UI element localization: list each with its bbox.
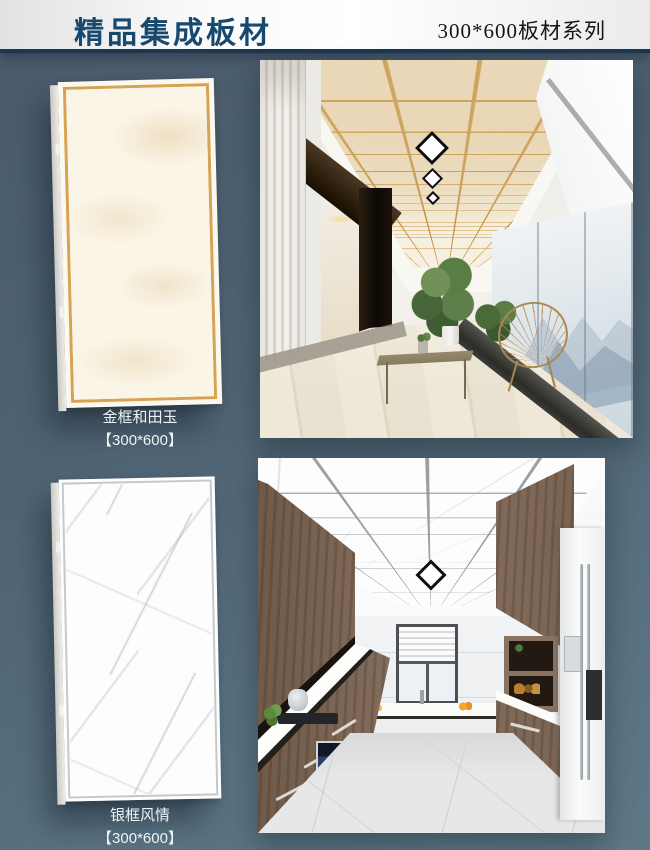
kettle — [288, 689, 308, 711]
balcony-scene-photo — [260, 60, 633, 438]
wall-oven-inset — [586, 670, 602, 720]
product-panel-silver-charm — [59, 476, 222, 801]
page-title: 精品集成板材 — [74, 8, 272, 52]
product-size: 【300*600】 — [30, 828, 250, 850]
product-panel-gold-jade — [58, 78, 222, 408]
product-name: 金框和田玉 — [30, 407, 250, 430]
header-bar: 精品集成板材 300*600板材系列 — [0, 0, 650, 53]
curtain — [260, 60, 306, 394]
cream-marble-surface — [66, 86, 214, 400]
window-blinds — [399, 627, 455, 663]
product-name: 银框风情 — [30, 805, 250, 828]
counter-plant — [260, 702, 284, 730]
window-mullion — [426, 663, 429, 701]
reflection-streak — [546, 78, 633, 207]
table-leg — [464, 359, 466, 399]
product-label-silver: 银框风情 【300*600】 — [30, 805, 250, 850]
shelf-bottles — [514, 682, 540, 694]
fruit-bowl — [458, 702, 472, 711]
faucet — [420, 690, 424, 704]
panel-face — [59, 476, 222, 801]
plant-pot — [442, 326, 459, 345]
product-size: 【300*600】 — [30, 430, 250, 453]
shelf-plant — [512, 642, 526, 654]
cooktop — [278, 713, 338, 724]
table-leg — [386, 362, 388, 404]
product-label-gold: 金框和田玉 【300*600】 — [30, 407, 250, 452]
kitchen-scene-photo — [258, 458, 605, 833]
water-dispenser — [564, 636, 581, 672]
poster: 精品集成板材 300*600板材系列 金框和田玉 【300*600】 银框风情 … — [0, 0, 650, 850]
fridge-handle — [580, 564, 583, 780]
white-marble-surface — [65, 483, 215, 796]
kitchen-window — [396, 624, 458, 704]
series-label: 300*600板材系列 — [438, 15, 607, 45]
panel-face — [58, 78, 222, 408]
